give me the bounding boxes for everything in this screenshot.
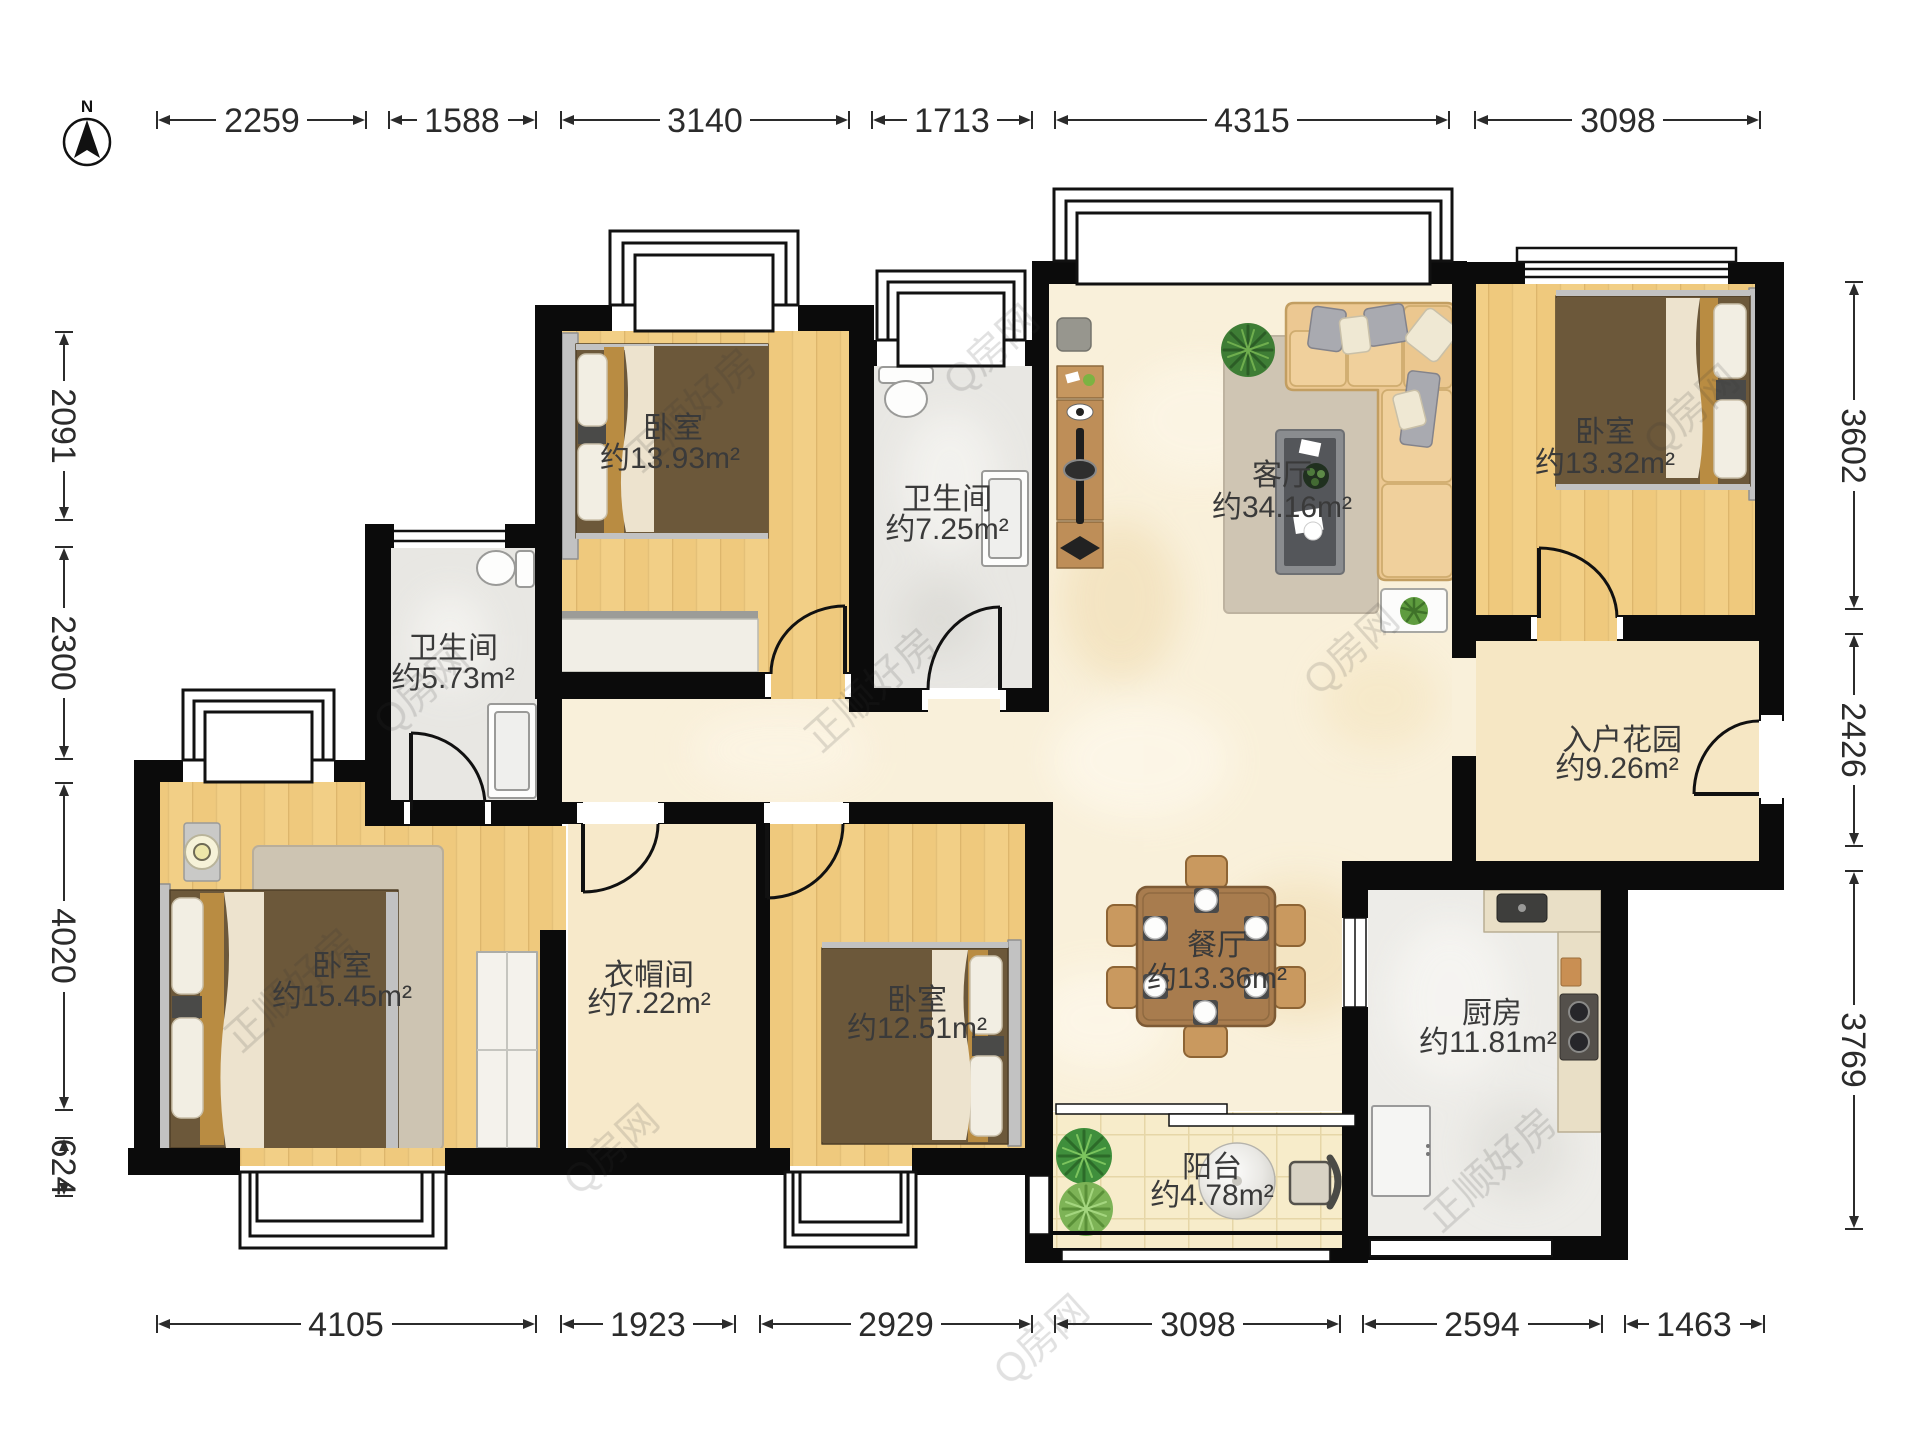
svg-text:1588: 1588 [424, 102, 500, 140]
svg-text:624: 624 [44, 1139, 82, 1196]
svg-text:4020: 4020 [44, 908, 82, 984]
svg-text:卫生间: 卫生间 [902, 483, 992, 516]
svg-text:N: N [81, 97, 93, 116]
svg-text:约9.26m²: 约9.26m² [1555, 752, 1678, 785]
svg-text:约4.78m²: 约4.78m² [1150, 1179, 1273, 1212]
svg-text:2929: 2929 [858, 1306, 934, 1344]
svg-text:2091: 2091 [44, 388, 82, 464]
svg-text:2259: 2259 [224, 102, 300, 140]
svg-text:3098: 3098 [1580, 102, 1656, 140]
svg-text:1463: 1463 [1656, 1306, 1732, 1344]
svg-text:3769: 3769 [1834, 1012, 1872, 1088]
svg-text:1713: 1713 [914, 102, 990, 140]
svg-text:4105: 4105 [308, 1306, 384, 1344]
svg-text:卧室: 卧室 [1575, 416, 1635, 449]
svg-text:1923: 1923 [610, 1306, 686, 1344]
svg-text:3140: 3140 [667, 102, 743, 140]
svg-text:2426: 2426 [1834, 702, 1872, 778]
svg-text:2300: 2300 [44, 615, 82, 691]
svg-text:3098: 3098 [1160, 1306, 1236, 1344]
svg-text:约7.22m²: 约7.22m² [587, 987, 710, 1020]
svg-text:约12.51m²: 约12.51m² [847, 1012, 987, 1045]
svg-text:约7.25m²: 约7.25m² [885, 513, 1008, 546]
svg-text:2594: 2594 [1444, 1306, 1520, 1344]
svg-text:餐厅: 餐厅 [1187, 929, 1247, 962]
svg-text:4315: 4315 [1214, 102, 1290, 140]
svg-text:约13.36m²: 约13.36m² [1147, 962, 1287, 995]
svg-text:客厅: 客厅 [1252, 459, 1312, 492]
svg-text:约11.81m²: 约11.81m² [1419, 1026, 1557, 1059]
svg-text:3602: 3602 [1834, 408, 1872, 484]
svg-text:约34.16m²: 约34.16m² [1212, 491, 1352, 524]
